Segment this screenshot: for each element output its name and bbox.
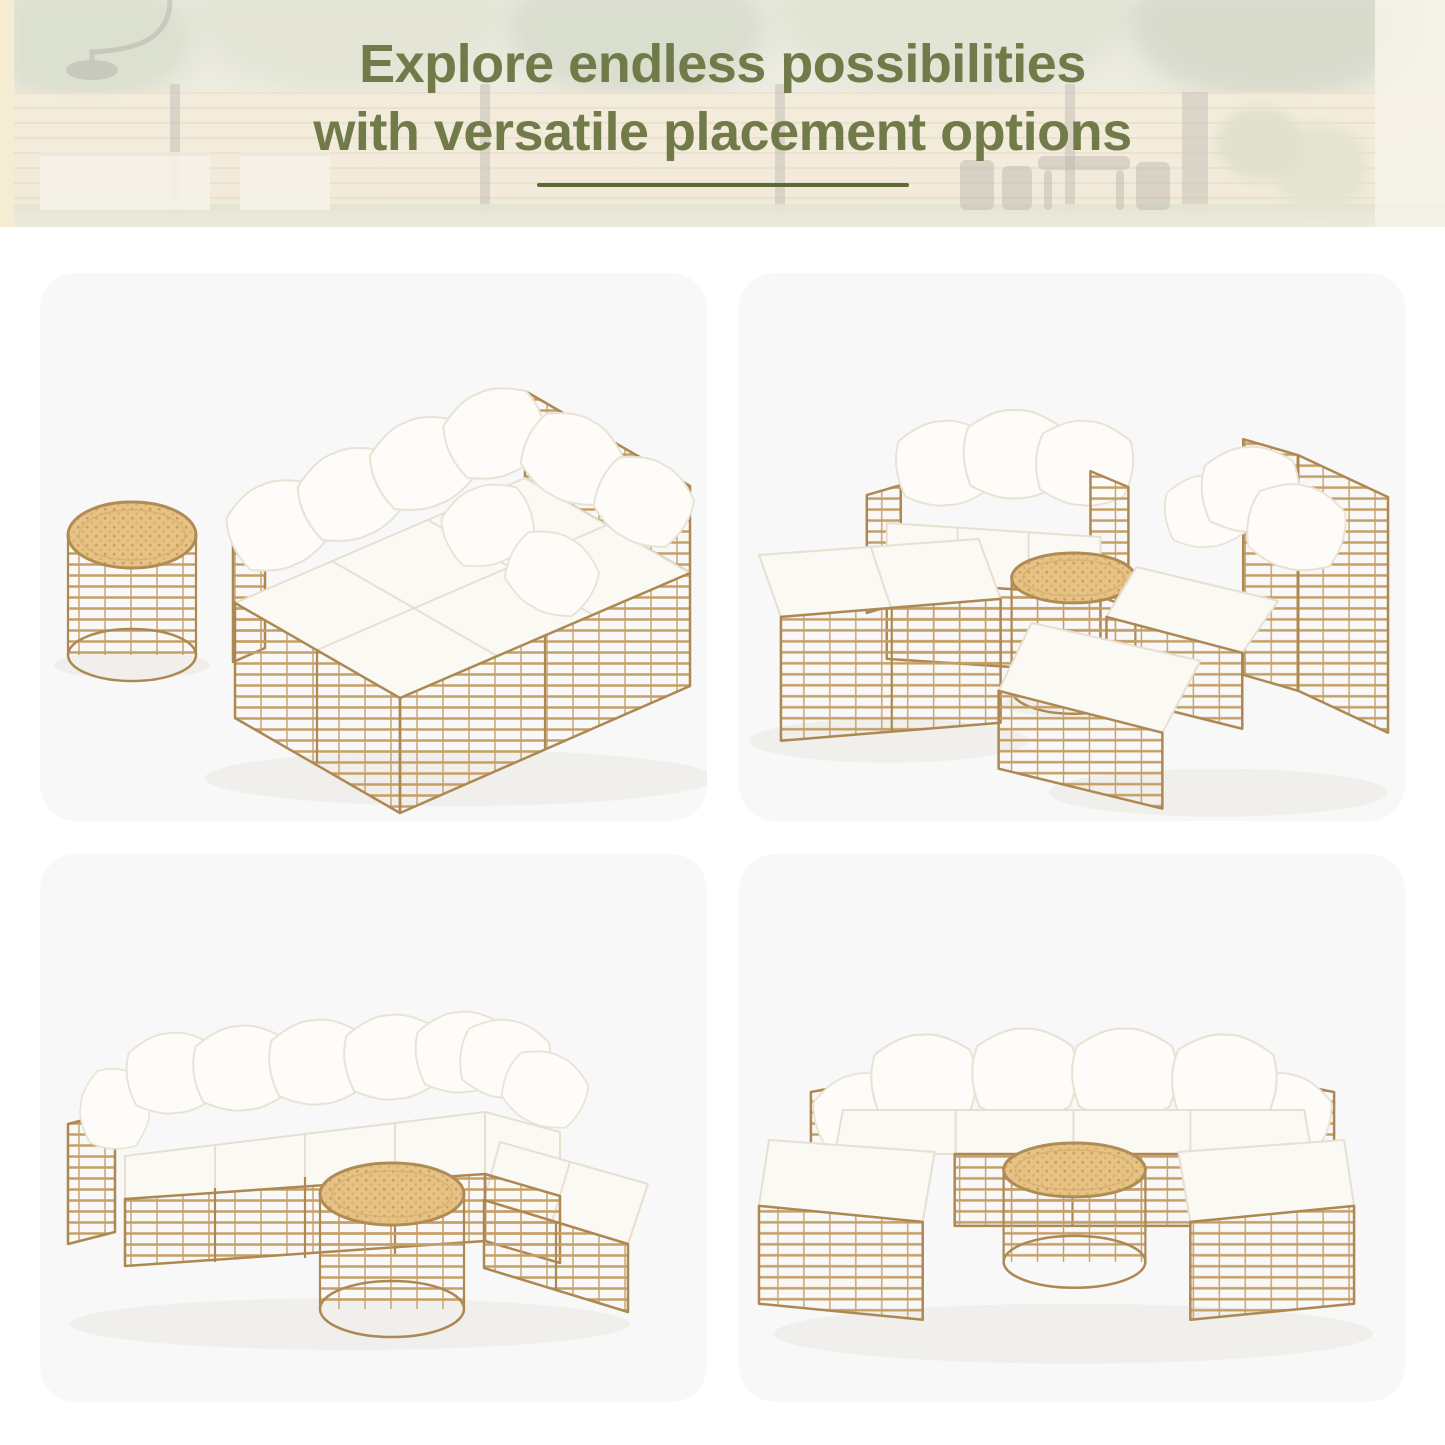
title-line-1: Explore endless possibilities — [359, 34, 1086, 94]
round-side-table — [68, 502, 196, 681]
product-showcase-page: Explore endless possibilitieswith versat… — [0, 0, 1445, 1445]
page-title: Explore endless possibilitieswith versat… — [0, 30, 1445, 166]
placement-options-gallery — [40, 273, 1405, 1402]
hero-text-block: Explore endless possibilitieswith versat… — [0, 30, 1445, 187]
round-coffee-table — [1004, 1143, 1146, 1288]
title-line-2: with versatile placement options — [313, 102, 1131, 162]
left-chaise-base — [759, 1206, 923, 1320]
sofa-groups-illustration — [739, 273, 1405, 821]
daybed — [216, 374, 706, 813]
round-coffee-table — [307, 1163, 477, 1337]
title-underline — [537, 183, 909, 187]
photo-u-shaped-sectional — [739, 854, 1405, 1402]
photo-sofa-and-corner-chairs — [739, 273, 1405, 821]
back-pillows — [123, 1007, 598, 1139]
left-cream-strip — [0, 0, 14, 227]
l-sectional-illustration — [40, 854, 707, 1402]
photo-l-shaped-sectional — [40, 854, 707, 1402]
daybed-illustration — [40, 273, 707, 821]
right-chaise-base — [1190, 1206, 1354, 1320]
photo-daybed-with-side-table — [40, 273, 707, 821]
u-sectional-illustration — [739, 854, 1405, 1402]
hero-banner: Explore endless possibilitieswith versat… — [0, 0, 1445, 227]
